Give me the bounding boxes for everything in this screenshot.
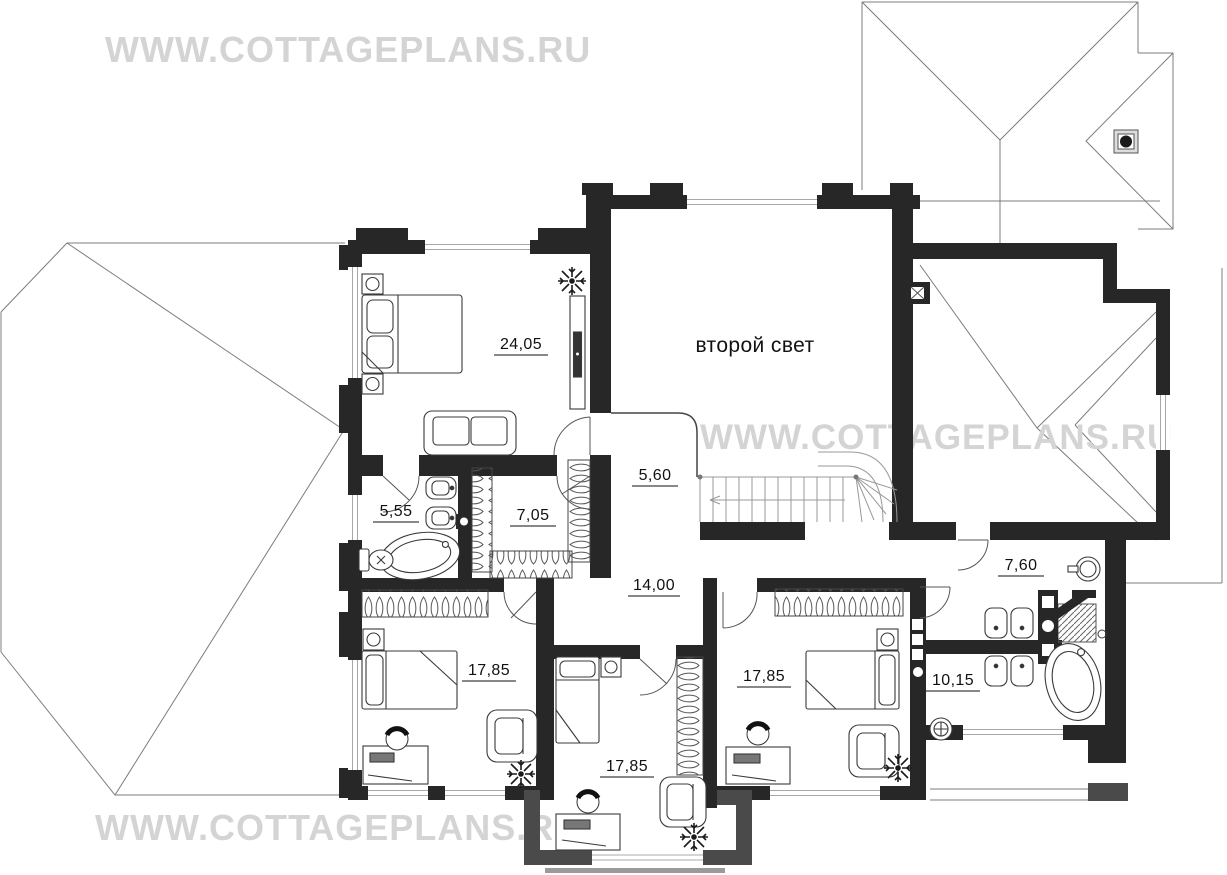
desk — [556, 814, 620, 850]
plant-icon — [558, 267, 586, 295]
window — [1156, 395, 1170, 450]
floor-plan-page: WWW.COTTAGEPLANS.RU WWW.COTTAGEPLANS.RU … — [0, 0, 1227, 875]
nightstand — [362, 274, 383, 294]
nightstand — [877, 629, 898, 650]
pedestal-sink — [930, 718, 952, 740]
desk — [363, 746, 428, 784]
nightstand — [363, 629, 384, 650]
exterior-and-interior-walls — [339, 183, 1170, 808]
door-master-bedroom — [554, 417, 590, 455]
wardrobe — [362, 590, 488, 617]
room-area-label: 17,85 — [606, 758, 648, 775]
single-bed — [362, 651, 457, 709]
left-roof-outline — [1, 243, 348, 795]
plant-icon — [680, 823, 708, 851]
door-bedroom-right — [723, 592, 757, 628]
armchair — [660, 777, 706, 827]
armchair — [487, 710, 537, 762]
floor-plan-drawing: WWW.COTTAGEPLANS.RU WWW.COTTAGEPLANS.RU … — [0, 0, 1227, 875]
room-area-label: 5,60 — [639, 467, 672, 484]
wardrobe — [677, 657, 703, 775]
single-bed — [806, 651, 899, 709]
round-sink — [1068, 557, 1100, 581]
window — [348, 495, 362, 540]
bathroom-sink — [426, 477, 456, 499]
watermark-top: WWW.COTTAGEPLANS.RU — [105, 29, 591, 70]
window — [445, 786, 505, 800]
window — [592, 850, 703, 865]
nightstand — [362, 374, 383, 394]
room-area-label: 10,15 — [932, 672, 974, 689]
wardrobe — [775, 589, 903, 616]
terrace-edge-lines — [930, 789, 1088, 800]
wall-fixture — [456, 514, 472, 529]
chimney-icon — [906, 282, 930, 304]
door-dressing-top — [958, 540, 988, 570]
room-area-label: 5,55 — [380, 503, 413, 520]
window — [368, 786, 428, 800]
room-area-label: 7,05 — [517, 507, 550, 524]
toilet — [359, 549, 393, 571]
room-area-label: 24,05 — [500, 336, 542, 353]
window — [348, 660, 362, 770]
window — [425, 240, 530, 254]
plant-icon — [507, 760, 535, 788]
chair — [577, 791, 599, 813]
room-area-label: 7,60 — [1005, 557, 1038, 574]
room-area-label: 17,85 — [468, 662, 510, 679]
tv-cabinet — [570, 296, 585, 409]
room-area-label: 17,85 — [743, 668, 785, 685]
armchair — [849, 725, 899, 777]
master-bed — [362, 295, 462, 373]
sofa — [424, 411, 516, 455]
plant-icon — [884, 754, 912, 782]
door-bedroom-left — [504, 592, 536, 624]
desk — [726, 747, 790, 784]
window — [687, 195, 817, 209]
room-area-label: 14,00 — [633, 577, 675, 594]
single-bed — [556, 657, 599, 743]
chair — [747, 723, 769, 745]
window — [348, 267, 362, 378]
window — [770, 786, 880, 800]
chimney-icon — [1114, 130, 1138, 153]
watermark-bottom: WWW.COTTAGEPLANS.RU — [95, 807, 581, 848]
second-light-label: второй свет — [695, 334, 814, 357]
watermark-middle: WWW.COTTAGEPLANS.RU — [700, 418, 1173, 457]
window — [963, 725, 1063, 740]
door-bedroom-middle — [640, 659, 676, 695]
nightstand — [601, 657, 621, 677]
bathroom-sink — [426, 507, 456, 529]
chair — [386, 728, 408, 750]
